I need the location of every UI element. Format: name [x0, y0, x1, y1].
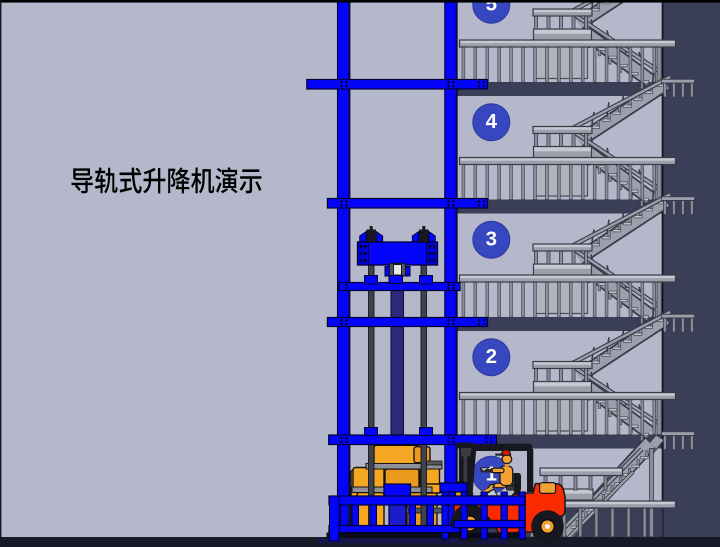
svg-text:4: 4	[486, 110, 498, 133]
svg-text:1: 1	[486, 462, 497, 485]
svg-text:2: 2	[486, 345, 497, 368]
svg-text:3: 3	[486, 227, 497, 250]
